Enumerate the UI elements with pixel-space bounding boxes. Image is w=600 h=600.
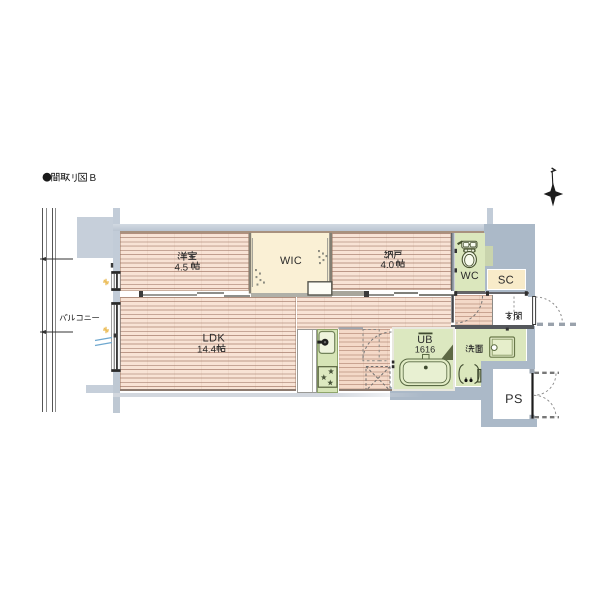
svg-text:LDK: LDK bbox=[203, 333, 226, 345]
svg-text:14.4: 14.4 bbox=[197, 344, 217, 355]
svg-text:1616: 1616 bbox=[415, 344, 435, 354]
svg-text:WIC: WIC bbox=[280, 255, 302, 267]
svg-text:PS: PS bbox=[505, 392, 523, 406]
svg-text:SC: SC bbox=[498, 275, 514, 287]
svg-text:WC: WC bbox=[461, 270, 479, 282]
svg-text:B: B bbox=[90, 173, 97, 184]
svg-text:4.0: 4.0 bbox=[381, 260, 395, 271]
svg-text:4.5: 4.5 bbox=[175, 262, 189, 273]
